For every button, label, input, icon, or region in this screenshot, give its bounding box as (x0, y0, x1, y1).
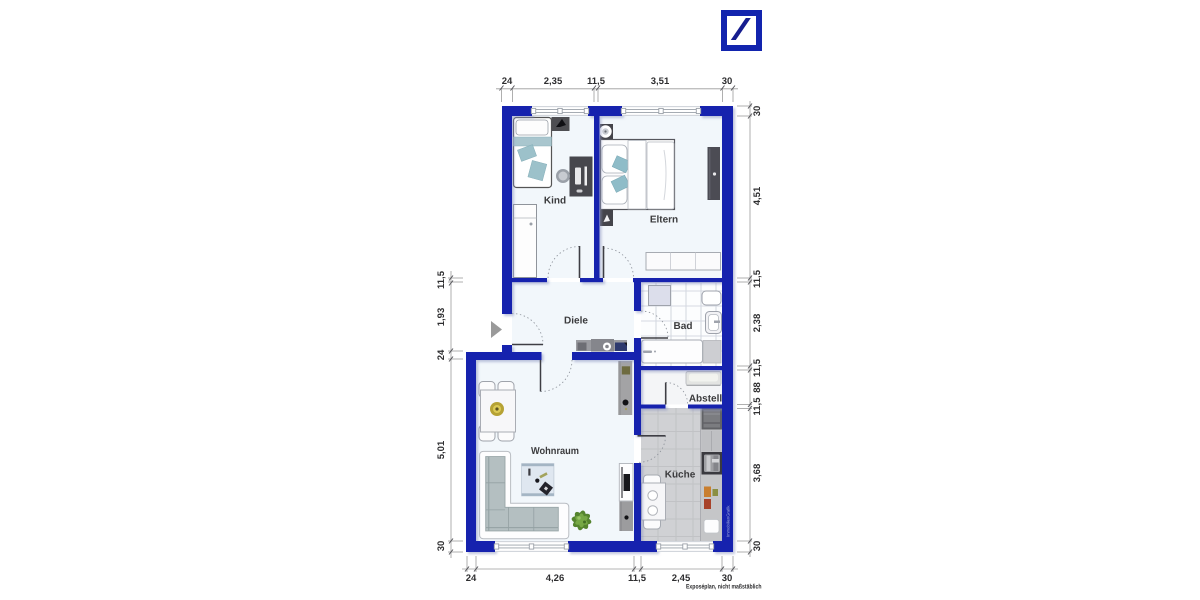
svg-text:11,5: 11,5 (752, 269, 763, 288)
svg-text:11,5: 11,5 (752, 358, 763, 377)
svg-text:24: 24 (466, 573, 477, 584)
svg-text:Abstell: Abstell (689, 394, 723, 405)
svg-text:4,26: 4,26 (546, 573, 565, 584)
svg-text:30: 30 (752, 541, 763, 552)
svg-text:11,5: 11,5 (436, 270, 447, 289)
svg-text:11,5: 11,5 (587, 76, 606, 87)
svg-text:24: 24 (502, 76, 513, 87)
svg-text:1,93: 1,93 (436, 308, 447, 327)
svg-text:24: 24 (436, 349, 447, 360)
svg-text:11,5: 11,5 (628, 573, 647, 584)
svg-text:2,35: 2,35 (544, 76, 563, 87)
svg-text:30: 30 (722, 76, 733, 87)
svg-text:Küche: Küche (665, 470, 696, 481)
svg-text:2,45: 2,45 (672, 573, 691, 584)
svg-text:Bad: Bad (674, 321, 693, 332)
svg-text:2,38: 2,38 (752, 314, 763, 333)
svg-text:Eltern: Eltern (650, 215, 678, 226)
svg-text:4,51: 4,51 (752, 186, 763, 205)
svg-text:3,51: 3,51 (651, 76, 670, 87)
svg-text:Wohnraum: Wohnraum (531, 446, 579, 457)
svg-text:ImmobilienGrafik: ImmobilienGrafik (726, 505, 731, 537)
svg-text:11,5: 11,5 (752, 397, 763, 416)
svg-text:30: 30 (436, 541, 447, 552)
svg-text:3,68: 3,68 (752, 464, 763, 483)
svg-text:Diele: Diele (564, 316, 588, 327)
svg-text:88: 88 (752, 382, 763, 393)
svg-text:30: 30 (722, 573, 733, 584)
svg-text:5,01: 5,01 (436, 440, 447, 459)
svg-text:Exposéplan, nicht maßstäblich: Exposéplan, nicht maßstäblich (686, 584, 762, 591)
svg-text:Kind: Kind (544, 196, 566, 207)
svg-text:30: 30 (752, 106, 763, 117)
